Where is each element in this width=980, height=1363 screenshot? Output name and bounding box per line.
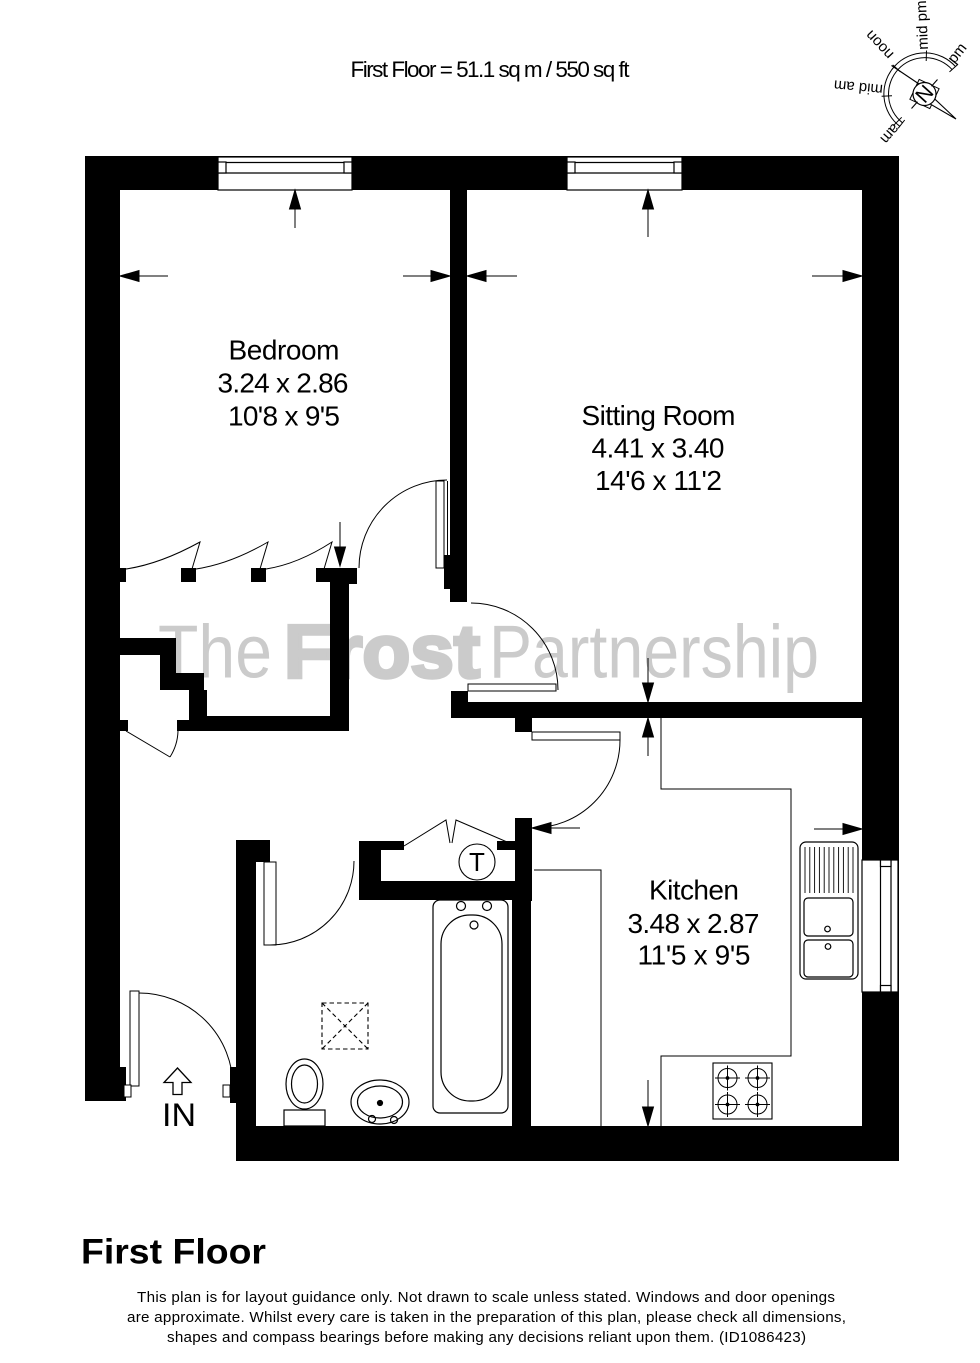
svg-text:3.24 x 2.86: 3.24 x 2.86 bbox=[218, 368, 349, 399]
svg-text:Bedroom: Bedroom bbox=[229, 335, 340, 366]
svg-text:First Floor = 51.1 sq m / 550: First Floor = 51.1 sq m / 550 sq ft bbox=[351, 57, 631, 82]
svg-text:are approximate. Whilst every: are approximate. Whilst every care is ta… bbox=[127, 1309, 846, 1326]
svg-text:IN: IN bbox=[162, 1097, 196, 1133]
svg-text:T: T bbox=[469, 847, 485, 877]
svg-text:Sitting Room: Sitting Room bbox=[582, 400, 736, 431]
svg-text:Frost: Frost bbox=[284, 610, 480, 694]
svg-text:10'8 x 9'5: 10'8 x 9'5 bbox=[228, 401, 340, 432]
svg-text:This plan is for layout guidan: This plan is for layout guidance only. N… bbox=[137, 1289, 835, 1306]
svg-text:mid pm: mid pm bbox=[913, 0, 932, 50]
svg-text:4.41 x 3.40: 4.41 x 3.40 bbox=[592, 433, 725, 464]
svg-text:shapes and compass bearings be: shapes and compass bearings before makin… bbox=[167, 1329, 806, 1346]
svg-text:3.48 x 2.87: 3.48 x 2.87 bbox=[628, 908, 760, 939]
svg-text:11'5 x 9'5: 11'5 x 9'5 bbox=[638, 940, 751, 971]
svg-text:Partnership: Partnership bbox=[489, 610, 819, 694]
svg-text:First Floor: First Floor bbox=[81, 1233, 266, 1272]
svg-text:14'6 x 11'2: 14'6 x 11'2 bbox=[595, 465, 722, 496]
svg-text:Kitchen: Kitchen bbox=[649, 875, 739, 906]
